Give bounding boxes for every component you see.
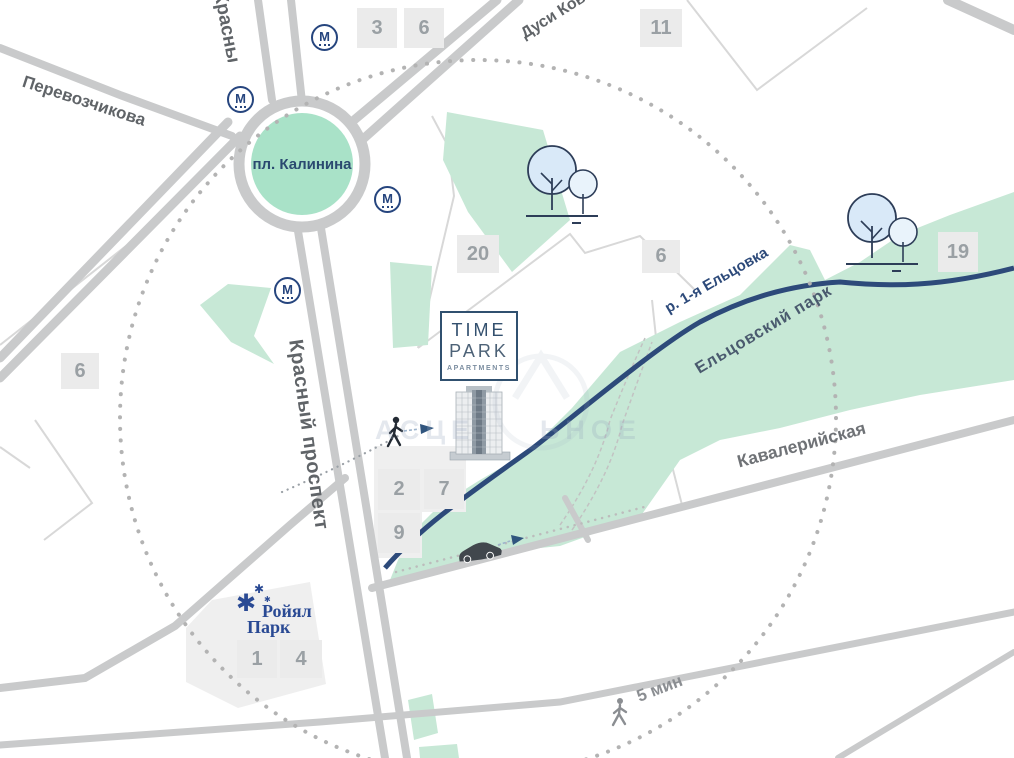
metro-letter: М bbox=[319, 30, 330, 46]
map-badge-3[interactable]: 3 bbox=[357, 8, 397, 48]
map-badge-1[interactable]: 1 bbox=[237, 640, 277, 678]
metro-icon[interactable]: М bbox=[374, 186, 401, 213]
map-badge-20[interactable]: 20 bbox=[457, 235, 499, 273]
metro-icon[interactable]: М bbox=[311, 24, 338, 51]
map-badge-11[interactable]: 11 bbox=[640, 9, 682, 47]
walk-time-icon bbox=[613, 698, 626, 725]
time-park-logo: TIME PARK APARTMENTS bbox=[440, 311, 518, 381]
royal-park-logo-line2: Парк bbox=[247, 617, 290, 638]
metro-letter: М bbox=[382, 192, 393, 208]
time-park-logo-line1: TIME bbox=[442, 320, 516, 341]
map-badge-7[interactable]: 7 bbox=[424, 469, 464, 509]
map-badge-6-left[interactable]: 6 bbox=[61, 353, 99, 389]
square-label-kalinina: пл. Калинина bbox=[252, 156, 352, 173]
map-badge-19[interactable]: 19 bbox=[938, 232, 978, 272]
watermark-text: ЬНОЕ bbox=[540, 415, 642, 446]
map-badge-6-mid[interactable]: 6 bbox=[642, 240, 680, 273]
royal-park-star-icon: ✱ bbox=[254, 583, 264, 595]
metro-icon[interactable]: М bbox=[227, 86, 254, 113]
map-badge-4[interactable]: 4 bbox=[280, 640, 322, 678]
map-badge-6-top[interactable]: 6 bbox=[404, 8, 444, 48]
metro-letter: М bbox=[235, 92, 246, 108]
watermark-text: АСЦЕ bbox=[375, 415, 475, 446]
map-badge-9[interactable]: 9 bbox=[378, 513, 420, 553]
metro-letter: М bbox=[282, 283, 293, 299]
map-badge-2[interactable]: 2 bbox=[378, 469, 420, 510]
time-park-logo-line2: PARK bbox=[442, 341, 516, 362]
metro-icon[interactable]: М bbox=[274, 277, 301, 304]
time-park-logo-line3: APARTMENTS bbox=[442, 365, 516, 372]
location-map: Перевозчикова Красный проспект Красный п… bbox=[0, 0, 1014, 758]
street-label-krasny-prospekt-north: Красный проспект bbox=[210, 0, 263, 62]
street-label-krasny-north-clip: Красный проспект bbox=[210, 0, 276, 62]
